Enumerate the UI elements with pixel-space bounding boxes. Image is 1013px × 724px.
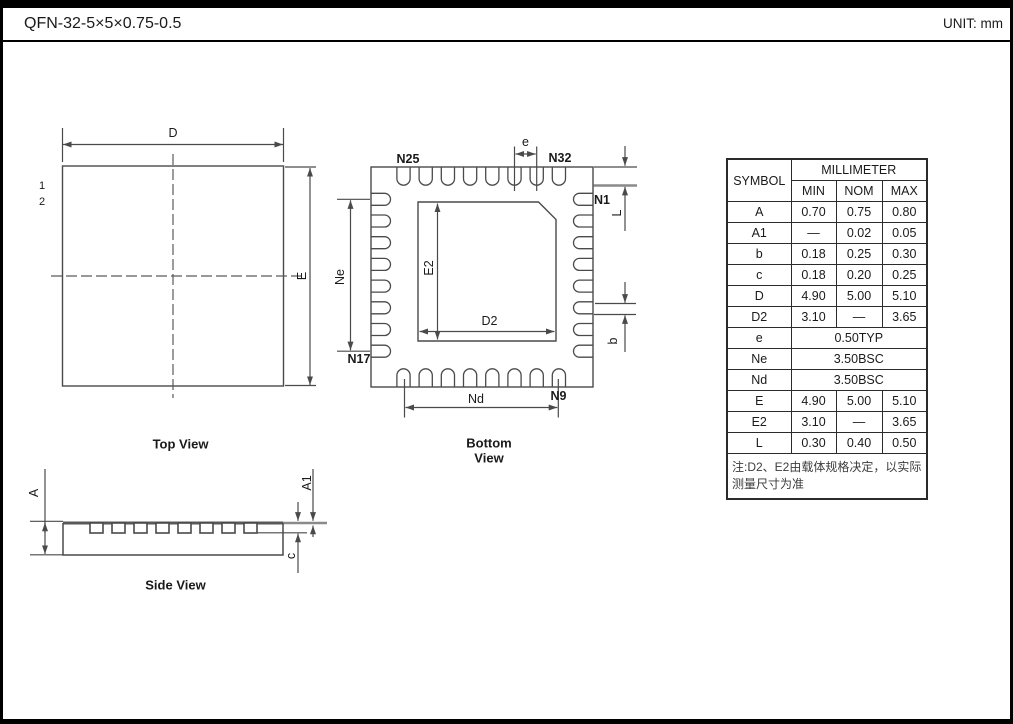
table-row: Nd3.50BSC [727, 370, 927, 391]
dim-label-Nd: Nd [468, 392, 484, 406]
table-header-row: SYMBOL MILLIMETER [727, 159, 927, 181]
side-view-drawing [30, 469, 327, 573]
symbol-header: SYMBOL [727, 159, 791, 202]
table-row: Ne3.50BSC [727, 349, 927, 370]
table-row: E23.10—3.65 [727, 412, 927, 433]
millimeter-header: MILLIMETER [791, 159, 927, 181]
pin2-marker: 2 [39, 196, 45, 208]
dim-label-A: A [27, 489, 41, 497]
table-row: D4.905.005.10 [727, 286, 927, 307]
table-row: A1—0.020.05 [727, 223, 927, 244]
table-note-row: 注:D2、E2由载体规格决定，以实际测量尺寸为准 [727, 454, 927, 500]
pin-label-N1: N1 [594, 193, 610, 207]
col-nom: NOM [836, 181, 882, 202]
table-row: c0.180.200.25 [727, 265, 927, 286]
dim-label-D: D [168, 126, 177, 140]
table-row: b0.180.250.30 [727, 244, 927, 265]
dimension-table: SYMBOL MILLIMETER MIN NOM MAX A0.700.750… [726, 158, 928, 500]
pin-label-N25: N25 [397, 152, 420, 166]
col-min: MIN [791, 181, 836, 202]
pin-label-N17: N17 [348, 352, 371, 366]
pin-label-N32: N32 [549, 151, 572, 165]
dim-label-b: b [606, 338, 620, 345]
dim-label-Ne: Ne [333, 269, 347, 285]
table-note: 注:D2、E2由载体规格决定，以实际测量尺寸为准 [727, 454, 927, 500]
dim-label-e: e [522, 135, 529, 149]
table-row: E4.905.005.10 [727, 391, 927, 412]
dim-label-A1: A1 [300, 475, 314, 490]
table-row: e0.50TYP [727, 328, 927, 349]
col-max: MAX [882, 181, 927, 202]
top-view-caption: Top View [153, 437, 209, 452]
datasheet-page: QFN-32-5×5×0.75-0.5 UNIT: mm [0, 0, 1013, 724]
bottom-view-caption-line1: Bottom [466, 436, 512, 451]
dim-label-L: L [610, 210, 624, 217]
dim-label-c: c [284, 553, 298, 559]
pin1-marker: 1 [39, 180, 45, 192]
pin-label-N9: N9 [551, 389, 567, 403]
table-row: A0.700.750.80 [727, 202, 927, 223]
dim-label-E2: E2 [422, 260, 436, 275]
dim-label-E: E [295, 272, 309, 280]
dim-label-D2: D2 [482, 314, 498, 328]
table-row: L0.300.400.50 [727, 433, 927, 454]
table-row: D23.10—3.65 [727, 307, 927, 328]
top-view-drawing [51, 128, 316, 398]
side-view-caption: Side View [145, 577, 205, 592]
bottom-view-drawing [337, 146, 637, 418]
bottom-view-caption-line2: View [474, 451, 503, 466]
